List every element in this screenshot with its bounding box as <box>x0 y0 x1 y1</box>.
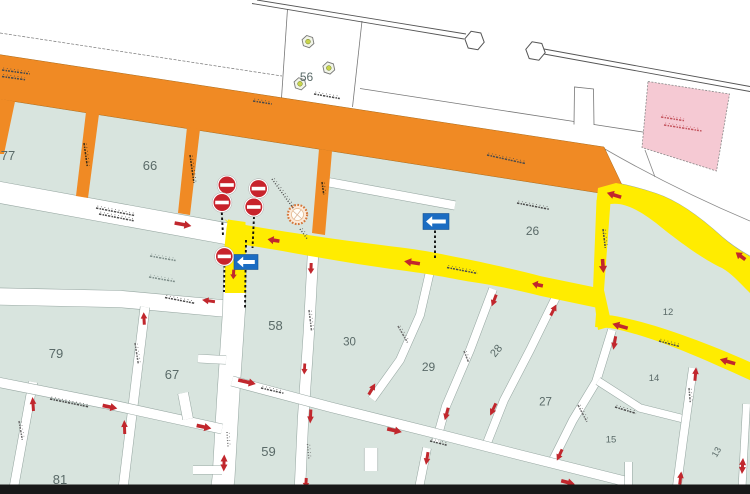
svg-text:12: 12 <box>663 307 674 318</box>
svg-text:58: 58 <box>268 318 282 333</box>
svg-text:59: 59 <box>261 444 275 459</box>
svg-text:27: 27 <box>539 397 552 409</box>
svg-text:26: 26 <box>526 224 540 238</box>
svg-text:29: 29 <box>422 360 436 374</box>
svg-text:56: 56 <box>300 70 314 84</box>
svg-text:66: 66 <box>143 158 157 173</box>
svg-text:30: 30 <box>343 337 356 349</box>
svg-text:14: 14 <box>649 373 660 384</box>
svg-text:15: 15 <box>606 435 617 446</box>
svg-text:67: 67 <box>165 367 179 382</box>
svg-text:77: 77 <box>1 148 15 163</box>
svg-text:79: 79 <box>49 346 63 361</box>
